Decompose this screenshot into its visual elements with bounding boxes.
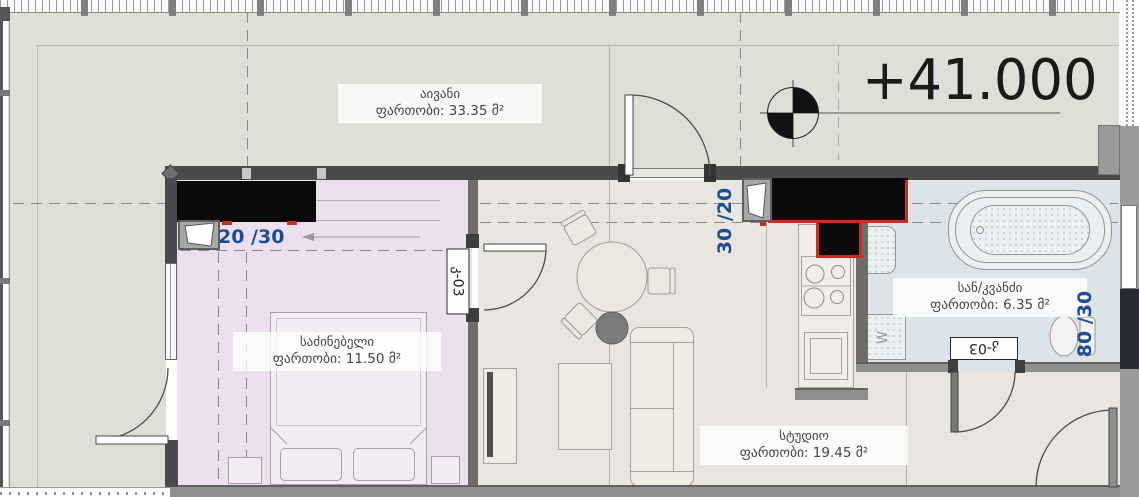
bath-door-jamb-1 [948, 360, 958, 373]
coffee-table [558, 363, 612, 450]
bedroom-window-line-1 [316, 200, 440, 201]
right-wall-shaft [1120, 289, 1139, 369]
stove [801, 256, 851, 316]
balcony-name: აივანი [344, 86, 536, 103]
terrace-inner-line-v [37, 45, 38, 487]
dim-bedroom-shaft: 20 /30 [218, 226, 284, 248]
beam-dashed-bedroom [180, 250, 468, 251]
terrace-wall-left [0, 13, 10, 487]
vent-shaft-bedroom-icon [178, 220, 220, 250]
dim-kitchen-shaft: 30 /20 [710, 181, 740, 261]
bedroom-area: ფართობი: 11.50 მ² [239, 351, 435, 369]
wall-bath-bottom-right [1025, 362, 1120, 372]
red-edge-4 [816, 255, 863, 258]
label-bathroom: სან/კვანძი ფართობი: 6.35 მ² [893, 278, 1087, 317]
bathroom-area: ფართობი: 6.35 მ² [899, 297, 1081, 315]
shear-wall-kitchen-small [816, 222, 862, 258]
wall-partition-lower [468, 322, 478, 485]
bathtub-basin [970, 205, 1090, 255]
studio-area: ფართობი: 19.45 მ² [706, 445, 902, 463]
bathtub-drain [976, 226, 984, 234]
wall-joint-2 [317, 168, 326, 179]
left-top-corner-post [0, 7, 10, 21]
balcony-area: ფართობი: 33.35 მ² [344, 103, 536, 121]
door-tag-bathroom: კ-03 [950, 337, 1018, 360]
terrace-floor-left [8, 168, 166, 487]
red-edge-1 [768, 220, 908, 223]
left-wall-tick-1 [0, 90, 10, 96]
bedroom-window-line-2 [316, 220, 440, 221]
right-wall-niche [1121, 205, 1137, 289]
red-tick-3 [760, 222, 766, 226]
terrace-railing-bottom [0, 487, 170, 497]
shear-wall-bedroom [177, 181, 316, 222]
bedroom-left-window [165, 263, 177, 360]
wall-bedroom-left-lower [165, 440, 178, 487]
bath-door-jamb-2 [1015, 360, 1025, 373]
sofa [630, 327, 694, 487]
neighbor-hatch-strip [1121, 0, 1139, 126]
pillow-left [280, 448, 342, 481]
wall-bath-bottom-left [856, 362, 948, 372]
window-glass-line [170, 264, 171, 359]
hatch-pattern [1126, 0, 1134, 126]
elevation-marker-icon [767, 87, 819, 139]
label-balcony: აივანი ფართობი: 33.35 მ² [338, 84, 542, 123]
washer-label: W [875, 331, 890, 344]
wall-top-left [165, 166, 628, 180]
grid-dashed-2 [740, 12, 741, 168]
vent-shaft-kitchen-icon [742, 178, 772, 222]
sofa-seat-split [631, 408, 673, 409]
grid-dashed-1 [247, 12, 248, 168]
bedroom-name: საძინებელი [239, 334, 435, 351]
door-post-2 [704, 164, 716, 182]
red-edge-3 [816, 222, 819, 258]
grid-dashed-3 [838, 45, 839, 160]
floor-plan: W [0, 0, 1139, 497]
red-tick-1 [222, 221, 232, 225]
red-tick-2 [287, 221, 297, 225]
terrace-inner-line-h [37, 45, 1119, 46]
wall-bottom [165, 485, 1139, 497]
sofa-back-line [673, 342, 674, 472]
dim-bathroom-shaft: 80 /30 [1070, 286, 1100, 362]
bathroom-name: სან/კვანძი [899, 280, 1081, 297]
label-bedroom: საძინებელი ფართობი: 11.50 მ² [233, 332, 441, 371]
red-edge-5 [859, 222, 862, 258]
wall-partition-upper [468, 180, 478, 234]
wall-joint-1 [242, 168, 251, 179]
elevation-value: +41.000 [862, 48, 1098, 113]
left-wall-tick-2 [0, 278, 10, 284]
wall-kitchen-bottom [795, 388, 868, 400]
nightstand-right [431, 456, 460, 484]
tv-screen [487, 372, 493, 457]
kitchen-nook-line [766, 222, 767, 388]
terrace-door-sill [628, 168, 706, 178]
beam-dashed-terrace [13, 203, 165, 204]
wall-bedroom-left-upper [165, 178, 177, 263]
door-tag-bedroom: კ-03 [447, 249, 470, 315]
left-wall-tick-3 [0, 420, 10, 426]
sofa-armrest-bottom-line [631, 471, 693, 472]
terrace-right-post [1098, 125, 1120, 175]
red-edge-2 [905, 180, 908, 222]
terrace-railing-posts [0, 0, 1120, 16]
door-post-1 [618, 164, 630, 182]
shear-wall-kitchen [770, 178, 908, 222]
sofa-armrest-top-line [631, 342, 693, 343]
label-studio: სტუდიო ფართობი: 19.45 მ² [700, 426, 908, 465]
nightstand-left [228, 457, 262, 484]
pillow-right [353, 448, 415, 481]
kitchen-sink-basin [810, 338, 842, 374]
door-jamb-1 [466, 234, 479, 248]
studio-name: სტუდიო [706, 428, 902, 445]
closet-dashed-1 [218, 252, 219, 483]
